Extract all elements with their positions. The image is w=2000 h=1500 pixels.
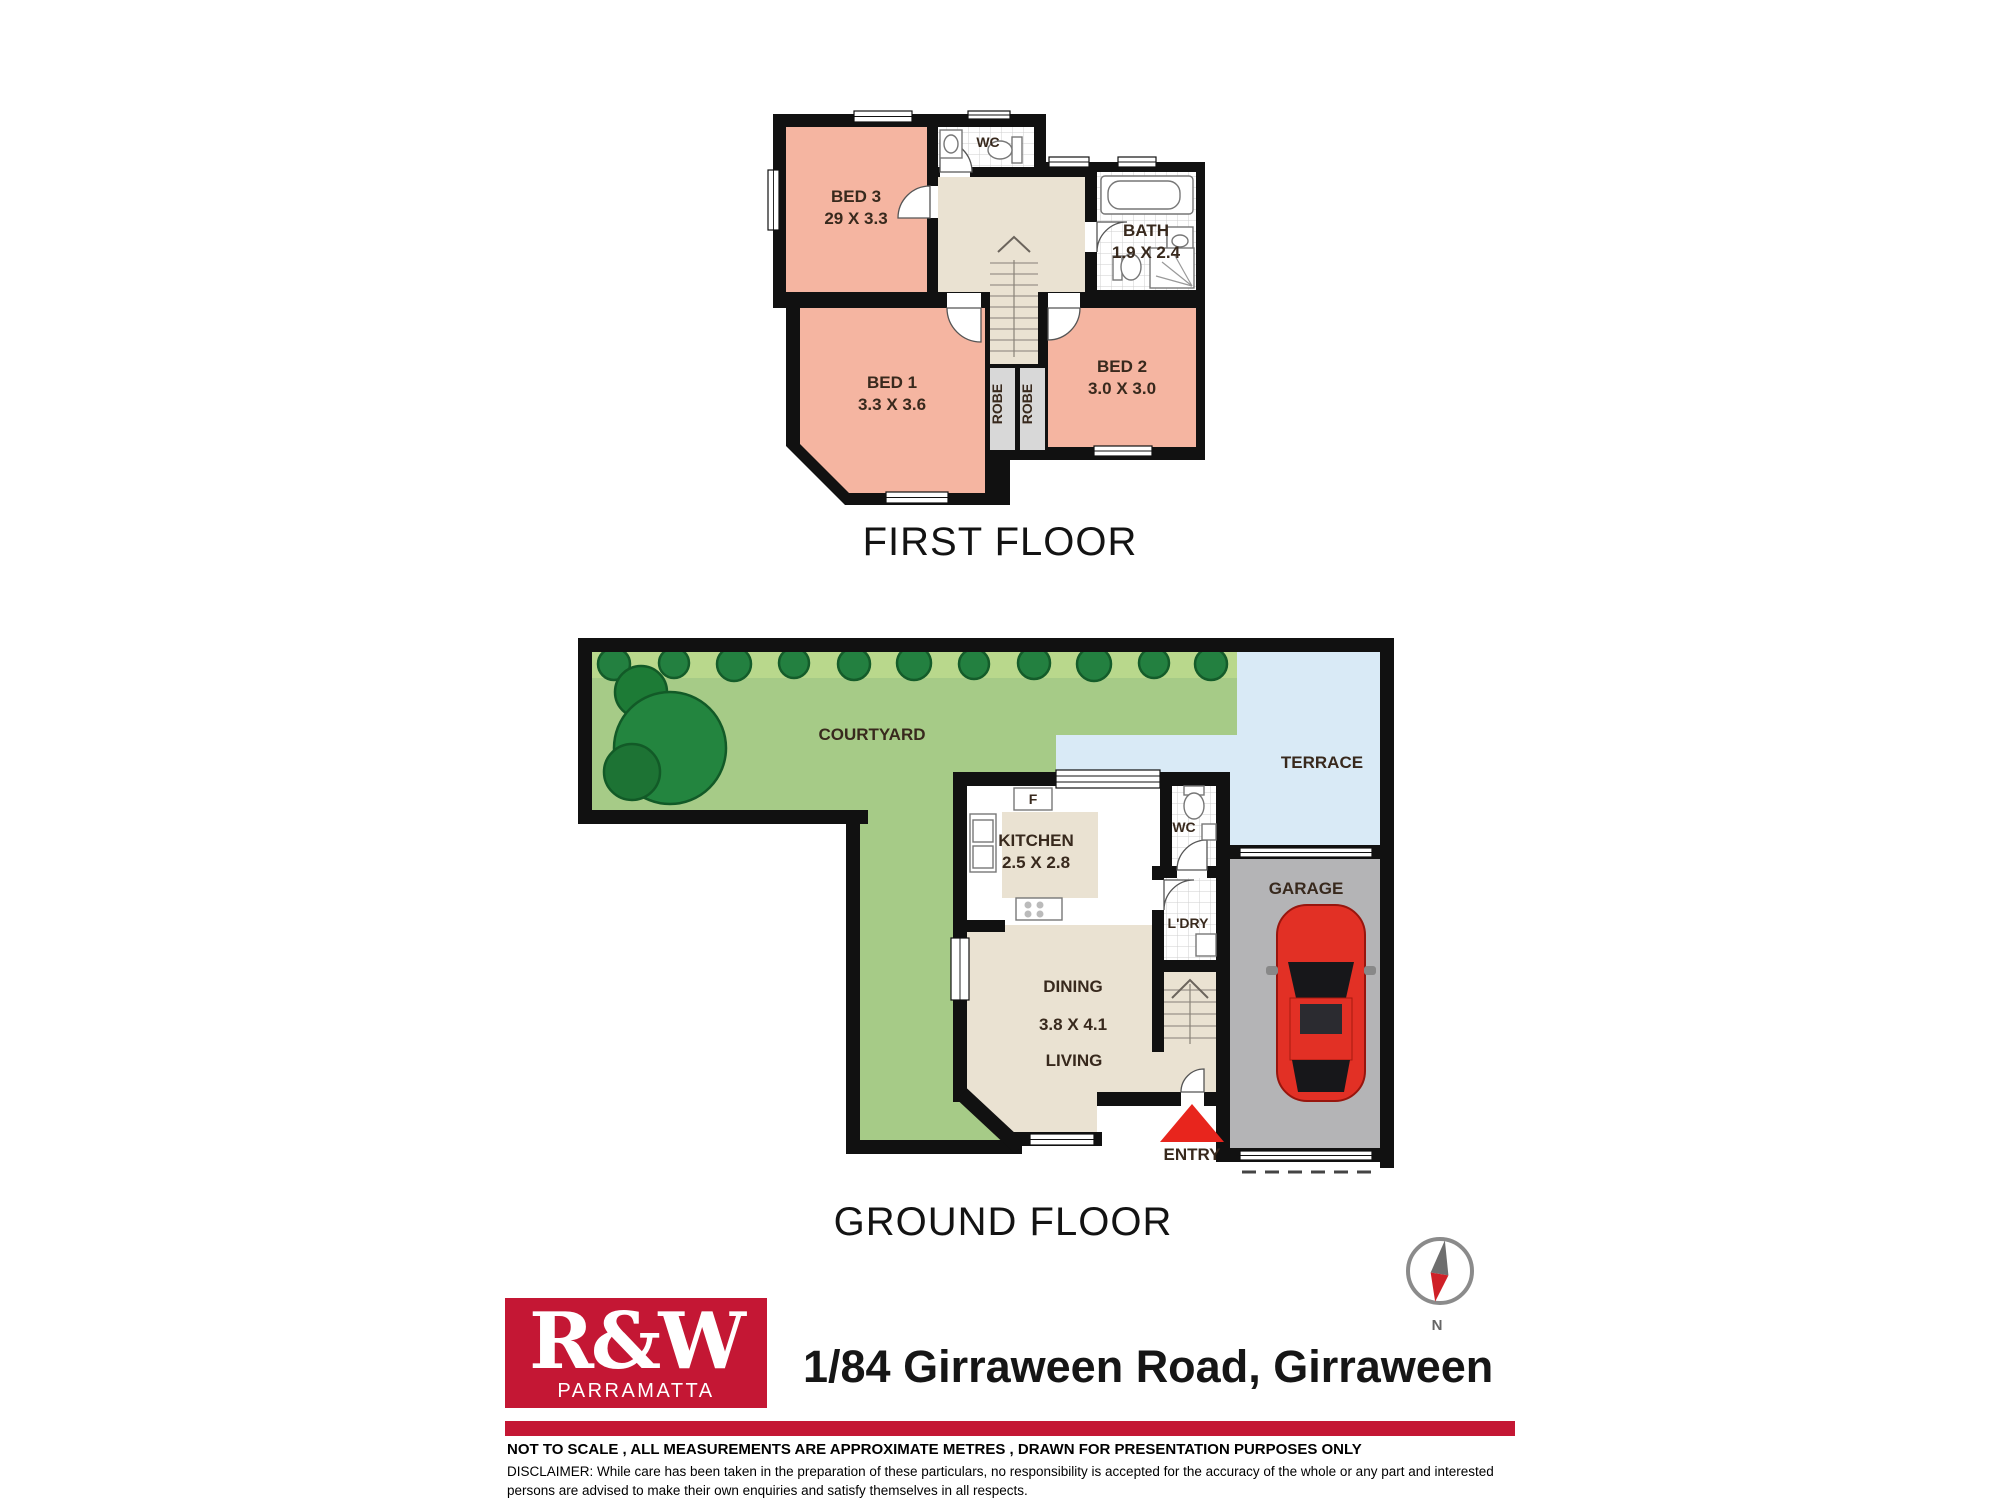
courtyard-label: COURTYARD — [818, 725, 925, 744]
disclaimer-line2: persons are advised to make their own en… — [507, 1481, 1517, 1500]
entry-arrow-icon — [1160, 1104, 1224, 1142]
robe-right-label: ROBE — [1019, 384, 1035, 424]
bath-label: BATH — [1123, 221, 1169, 240]
bed1-dims: 3.3 X 3.6 — [858, 395, 926, 414]
dining-label: DINING — [1043, 977, 1103, 996]
disclaimer-line1: DISCLAIMER: While care has been taken in… — [507, 1462, 1517, 1481]
bed1-label: BED 1 — [867, 373, 917, 392]
bed3-dims: 29 X 3.3 — [824, 209, 887, 228]
laundry-label: L'DRY — [1168, 915, 1210, 931]
basin-icon — [1202, 824, 1216, 840]
kitchen-label: KITCHEN — [998, 831, 1074, 850]
bed2-dims: 3.0 X 3.0 — [1088, 379, 1156, 398]
north-compass-icon: N — [1395, 1222, 1490, 1340]
ground-floor-title: GROUND FLOOR — [703, 1200, 1303, 1245]
scale-note: NOT TO SCALE , ALL MEASUREMENTS ARE APPR… — [507, 1441, 1517, 1458]
toilet-icon — [1184, 793, 1204, 819]
fridge-label: F — [1029, 791, 1038, 807]
wc-label: WC — [976, 134, 999, 150]
terrace-label: TERRACE — [1281, 753, 1363, 772]
dining-dims: 3.8 X 4.1 — [1039, 1015, 1107, 1034]
property-address: 1/84 Girraween Road, Girraween — [803, 1341, 1493, 1393]
toilet-icon — [1012, 137, 1022, 163]
entry-label: ENTRY — [1164, 1145, 1222, 1164]
garage-label: GARAGE — [1269, 879, 1344, 898]
bed3-label: BED 3 — [831, 187, 881, 206]
bath-dims: 1.9 X 2.4 — [1112, 243, 1181, 262]
living-label: LIVING — [1046, 1051, 1103, 1070]
ground-floor-plan: COURTYARD TERRACE KITCHEN 2.5 X 2.8 F WC… — [565, 628, 1410, 1188]
legal-text: NOT TO SCALE , ALL MEASUREMENTS ARE APPR… — [507, 1441, 1517, 1500]
floorplan-sheet: BED 3 29 X 3.3 WC BATH 1.9 X 2.4 BED 1 3… — [0, 0, 2000, 1500]
first-floor-plan: BED 3 29 X 3.3 WC BATH 1.9 X 2.4 BED 1 3… — [765, 100, 1215, 512]
bed2-label: BED 2 — [1097, 357, 1147, 376]
laundry-tub-icon — [1196, 934, 1216, 956]
kitchen-dims: 2.5 X 2.8 — [1002, 853, 1070, 872]
agency-brand: R&W — [505, 1300, 767, 1384]
footer-divider-bar — [505, 1421, 1515, 1436]
first-floor-title: FIRST FLOOR — [700, 520, 1300, 565]
agency-logo: R&W PARRAMATTA — [505, 1298, 767, 1408]
robe-left-label: ROBE — [989, 384, 1005, 424]
north-label: N — [1432, 1317, 1443, 1334]
car-icon — [1266, 905, 1376, 1101]
wc-ground-label: WC — [1172, 819, 1195, 835]
